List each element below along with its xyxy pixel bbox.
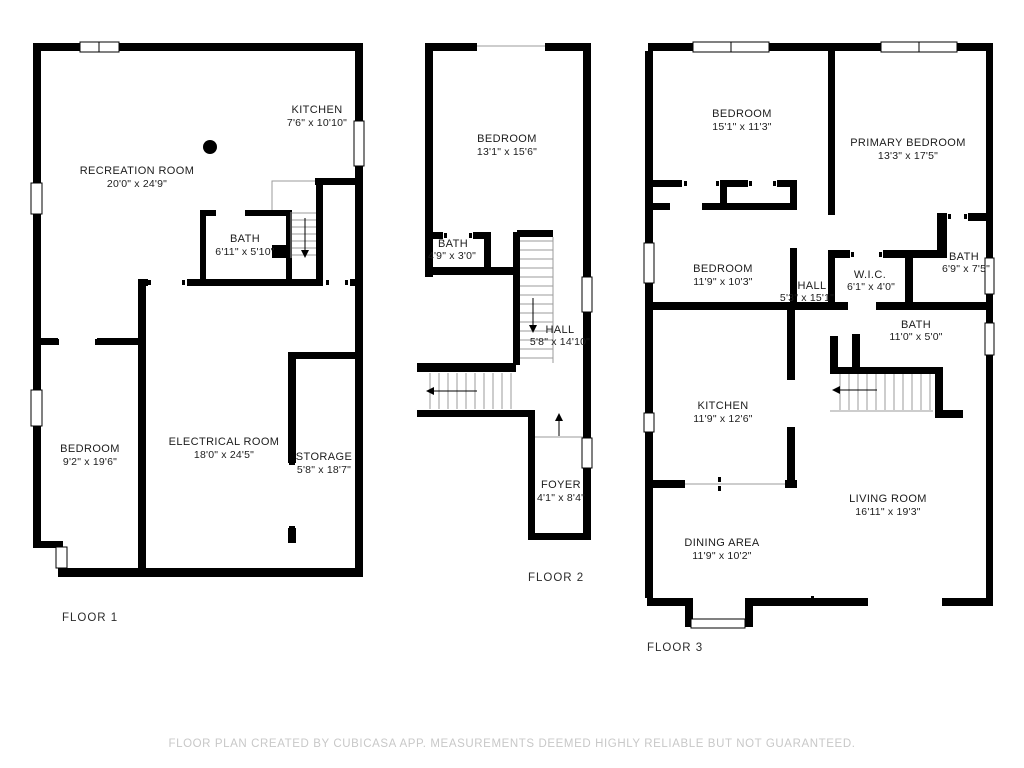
f3-dining-area-name: DINING AREA bbox=[684, 537, 760, 549]
f3-bath2-name: BATH bbox=[901, 319, 931, 331]
f1-bath-dims: 6'11" x 5'10" bbox=[215, 246, 274, 258]
f1-kitchen-dims: 7'6" x 10'10" bbox=[287, 117, 347, 129]
f3-bedroom1-name: BEDROOM bbox=[712, 108, 772, 120]
f1-electrical-name: ELECTRICAL ROOM bbox=[169, 436, 280, 448]
f3-hall-dims: 5'3" x 15'1" bbox=[780, 292, 834, 304]
f1-recreation-name: RECREATION ROOM bbox=[80, 165, 195, 177]
f1-bath-name: BATH bbox=[230, 233, 260, 245]
f1-bedroom-name: BEDROOM bbox=[60, 443, 120, 455]
f2-hall-dims: 5'8" x 14'10" bbox=[530, 336, 590, 348]
floor2-walls bbox=[417, 43, 591, 540]
floor3-plan: BEDROOM 15'1" x 11'3" PRIMARY BEDROOM 13… bbox=[644, 42, 994, 654]
f3-wic-name: W.I.C. bbox=[854, 269, 886, 281]
f1-storage-dims: 5'8" x 18'7" bbox=[297, 464, 351, 476]
floor1-label: FLOOR 1 bbox=[62, 612, 118, 624]
f3-bath2-dims: 11'0" x 5'0" bbox=[889, 331, 942, 343]
floor3-stairs bbox=[685, 374, 933, 484]
f2-bath-name: BATH bbox=[438, 238, 468, 250]
f3-bath1-dims: 6'9" x 7'5" bbox=[942, 263, 990, 275]
floor2-label: FLOOR 2 bbox=[528, 572, 584, 584]
f3-wic-dims: 6'1" x 4'0" bbox=[847, 281, 895, 293]
f2-bedroom-dims: 13'1" x 15'6" bbox=[477, 146, 537, 158]
f2-foyer-dims: 4'1" x 8'4" bbox=[537, 492, 585, 504]
f3-dining-area-dims: 11'9" x 10'2" bbox=[692, 550, 751, 562]
floor3-label: FLOOR 3 bbox=[647, 642, 703, 654]
f2-bath-dims: 4'9" x 3'0" bbox=[428, 250, 476, 262]
f1-storage-name: STORAGE bbox=[296, 451, 352, 463]
f2-hall-name: HALL bbox=[545, 324, 574, 336]
f3-kitchen-name: KITCHEN bbox=[697, 400, 748, 412]
f2-bedroom-name: BEDROOM bbox=[477, 133, 537, 145]
f1-recreation-dims: 20'0" x 24'9" bbox=[107, 178, 167, 190]
f3-primary-bedroom-name: PRIMARY BEDROOM bbox=[850, 137, 966, 149]
f3-living-room-dims: 16'11" x 19'3" bbox=[855, 506, 921, 518]
f1-kitchen-name: KITCHEN bbox=[291, 104, 342, 116]
f2-foyer-name: FOYER bbox=[541, 479, 581, 491]
f3-bedroom1-dims: 15'1" x 11'3" bbox=[712, 121, 771, 133]
f1-bedroom-dims: 9'2" x 19'6" bbox=[63, 456, 117, 468]
f3-hall-name: HALL bbox=[797, 280, 826, 292]
ceiling-fixture-dot bbox=[203, 140, 217, 154]
footer-disclaimer: FLOOR PLAN CREATED BY CUBICASA APP. MEAS… bbox=[168, 738, 855, 750]
floor2-windows bbox=[477, 46, 592, 468]
floor2-plan: BEDROOM 13'1" x 15'6" BATH 4'9" x 3'0" H… bbox=[417, 43, 592, 584]
f3-bedroom2-dims: 11'9" x 10'3" bbox=[693, 276, 752, 288]
f3-kitchen-dims: 11'9" x 12'6" bbox=[693, 413, 752, 425]
floor1-plan: KITCHEN 7'6" x 10'10" RECREATION ROOM 20… bbox=[31, 42, 364, 624]
f1-electrical-dims: 18'0" x 24'5" bbox=[194, 449, 254, 461]
floor-plan-svg: KITCHEN 7'6" x 10'10" RECREATION ROOM 20… bbox=[0, 0, 1024, 768]
f3-bath1-name: BATH bbox=[949, 251, 979, 263]
f3-living-room-name: LIVING ROOM bbox=[849, 493, 927, 505]
f3-bedroom2-name: BEDROOM bbox=[693, 263, 753, 275]
floor-plan-canvas: KITCHEN 7'6" x 10'10" RECREATION ROOM 20… bbox=[0, 0, 1024, 768]
f3-primary-bedroom-dims: 13'3" x 17'5" bbox=[878, 150, 938, 162]
